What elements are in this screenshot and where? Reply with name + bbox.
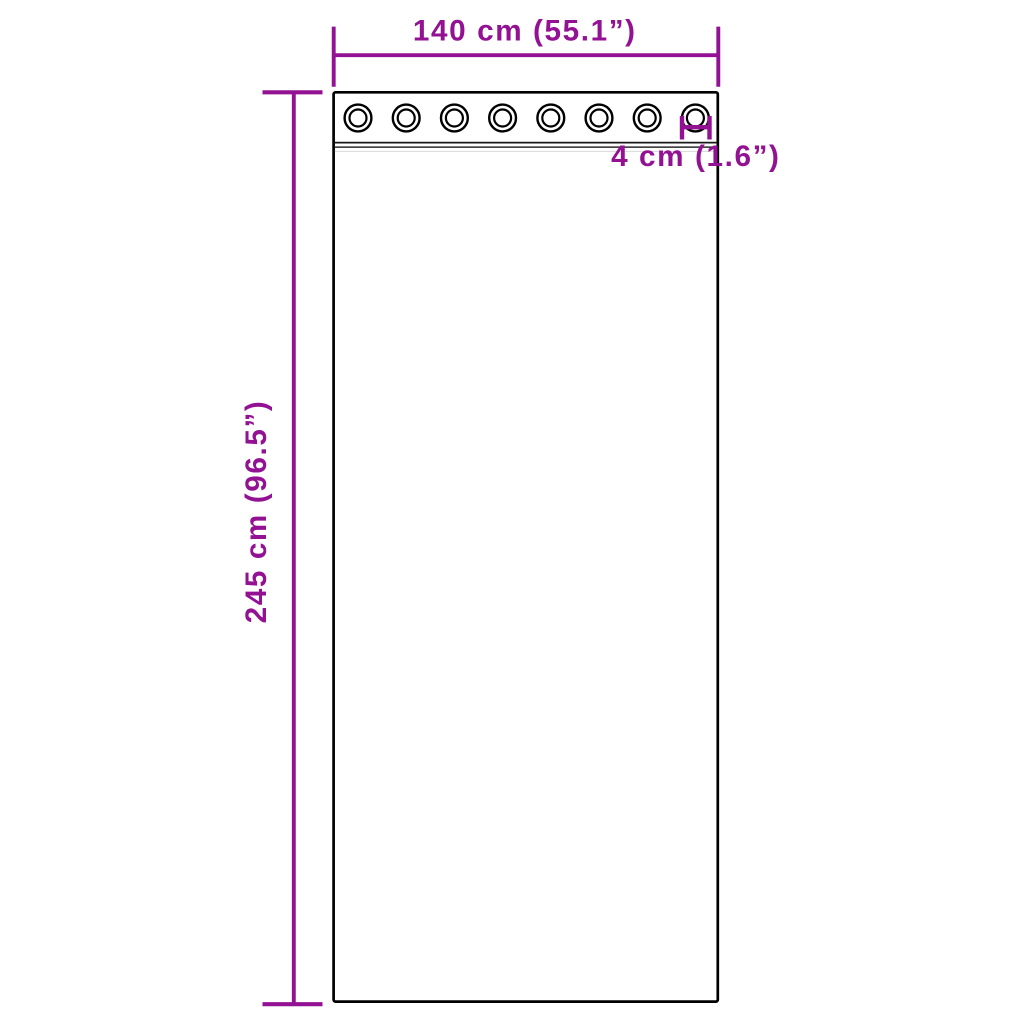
svg-text:245 cm (96.5”): 245 cm (96.5”) [240, 400, 273, 624]
svg-text:140 cm (55.1”): 140 cm (55.1”) [413, 15, 637, 48]
svg-text:4 cm (1.6”): 4 cm (1.6”) [611, 140, 780, 173]
